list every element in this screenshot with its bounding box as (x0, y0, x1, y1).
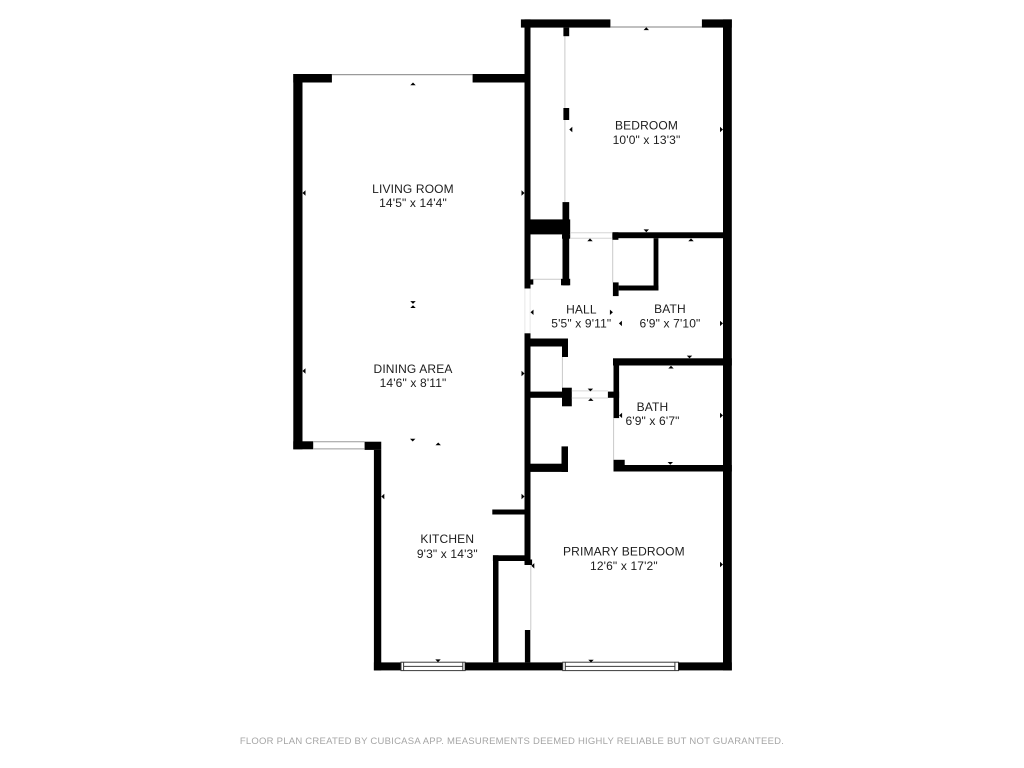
svg-text:PRIMARY BEDROOM: PRIMARY BEDROOM (563, 545, 685, 559)
svg-text:BATH: BATH (654, 302, 686, 316)
svg-text:9'3" x 14'3": 9'3" x 14'3" (417, 547, 478, 561)
svg-text:BEDROOM: BEDROOM (615, 118, 678, 132)
svg-text:10'0" x 13'3": 10'0" x 13'3" (613, 133, 681, 147)
svg-text:5'5" x 9'11": 5'5" x 9'11" (551, 317, 611, 331)
svg-text:BATH: BATH (637, 400, 669, 414)
svg-text:14'5" x 14'4": 14'5" x 14'4" (379, 196, 447, 210)
svg-text:DINING AREA: DINING AREA (374, 362, 453, 376)
svg-text:6'9" x 6'7": 6'9" x 6'7" (625, 414, 679, 428)
svg-text:6'9" x 7'10": 6'9" x 7'10" (640, 317, 701, 331)
svg-text:FLOOR PLAN CREATED BY CUBICASA: FLOOR PLAN CREATED BY CUBICASA APP. MEAS… (240, 736, 784, 747)
svg-text:KITCHEN: KITCHEN (420, 532, 474, 546)
svg-text:14'6" x 8'11": 14'6" x 8'11" (380, 376, 447, 390)
svg-text:12'6" x 17'2": 12'6" x 17'2" (590, 559, 658, 573)
svg-text:HALL: HALL (566, 303, 597, 317)
svg-text:LIVING ROOM: LIVING ROOM (372, 182, 454, 196)
